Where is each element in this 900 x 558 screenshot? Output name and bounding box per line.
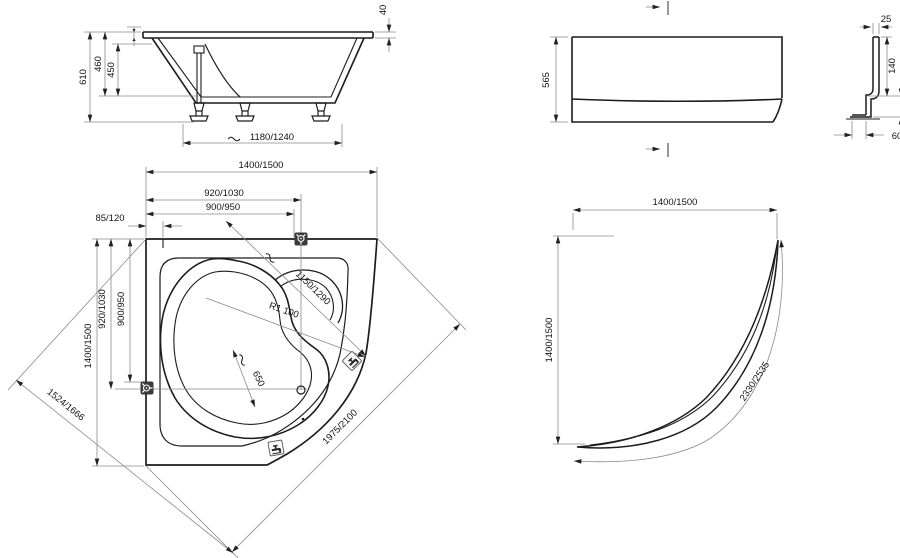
dim-panel-arc-length: 2330/2535 bbox=[738, 360, 772, 403]
dim-panel-height: 565 bbox=[541, 72, 552, 88]
deck-tap-icon bbox=[268, 440, 284, 456]
dim-plan-length: 1400/1500 bbox=[83, 324, 94, 369]
wall-mixer-icon bbox=[295, 233, 308, 246]
dim-profile-foot-offset: 60 bbox=[892, 131, 900, 142]
dim-panel-plan-length: 1400/1500 bbox=[544, 318, 555, 363]
panel-plan-view: 2330/2535 1400/1500 1400/1500 bbox=[544, 197, 782, 462]
side-elevation-view: 610 460 450 40 1180/1240 bbox=[78, 5, 396, 147]
dim-plan-width: 1400/1500 bbox=[239, 160, 284, 171]
dim-plan-width-drain: 920/1030 bbox=[204, 188, 244, 199]
dim-line bbox=[16, 380, 233, 553]
dim-side-feet-spacing: 1180/1240 bbox=[250, 132, 294, 143]
dim-profile-upper-height: 140 bbox=[887, 58, 898, 74]
panel-front-outline bbox=[572, 37, 782, 122]
section-mark-top bbox=[646, 1, 668, 15]
plan-view: 1400/1500 920/1030 900/950 85/120 1400/1… bbox=[8, 160, 466, 558]
dim-side-height-460: 460 bbox=[93, 56, 104, 72]
dim-plan-corner-offset: 85/120 bbox=[95, 213, 124, 224]
basin-floor-contour bbox=[174, 271, 312, 424]
section-mark-bottom bbox=[646, 143, 668, 157]
profile-outline bbox=[850, 37, 879, 117]
dim-profile-top-width: 25 bbox=[881, 14, 892, 25]
dim-side-total-height: 610 bbox=[78, 69, 89, 85]
dim-plan-seat-width: 650 bbox=[250, 369, 267, 388]
approx-wave-icon bbox=[228, 137, 240, 141]
dim-plan-front-edge: 1975/2100 bbox=[320, 407, 360, 447]
dim-panel-plan-width: 1400/1500 bbox=[653, 197, 698, 208]
dim-plan-length-tap: 900/950 bbox=[116, 292, 127, 326]
tiny-rim-dimension bbox=[132, 27, 135, 46]
wall-mixer-icon bbox=[141, 382, 154, 395]
overflow-fitting bbox=[194, 46, 204, 53]
deck-tap-icon bbox=[342, 351, 362, 371]
tub-feet bbox=[190, 103, 330, 121]
panel-band bbox=[577, 240, 778, 448]
panel-front-view: 565 bbox=[541, 1, 782, 157]
tub-inner-shell bbox=[158, 38, 357, 97]
extension-lines bbox=[84, 27, 396, 147]
dim-plan-length-drain: 920/1030 bbox=[97, 289, 108, 329]
jet-dot bbox=[302, 418, 305, 421]
dim-plan-width-tap: 900/950 bbox=[206, 202, 240, 213]
extension-lines bbox=[550, 37, 568, 122]
tub-rim-profile bbox=[143, 32, 373, 38]
centerlines bbox=[115, 194, 307, 390]
dim-line bbox=[233, 350, 255, 407]
bathtub-technical-drawing: 610 460 450 40 1180/1240 1400/1500 9 bbox=[0, 0, 900, 558]
extension-lines bbox=[852, 23, 900, 139]
dim-side-rim-height: 40 bbox=[378, 5, 389, 16]
tub-seat-curve bbox=[205, 44, 240, 97]
drawing-canvas: 610 460 450 40 1180/1240 1400/1500 9 bbox=[0, 0, 900, 558]
dim-plan-front-radius: R1 100 bbox=[268, 300, 301, 320]
extension-lines bbox=[553, 213, 777, 444]
extension-lines bbox=[8, 167, 466, 558]
panel-profile-section: 25 140 150 60 bbox=[834, 14, 900, 142]
approx-wave-icon bbox=[238, 354, 246, 366]
dim-side-inner-depth: 450 bbox=[106, 62, 117, 78]
arc-dim-line bbox=[574, 240, 782, 462]
dim-plan-diagonal-width: 1524/1666 bbox=[45, 387, 87, 424]
